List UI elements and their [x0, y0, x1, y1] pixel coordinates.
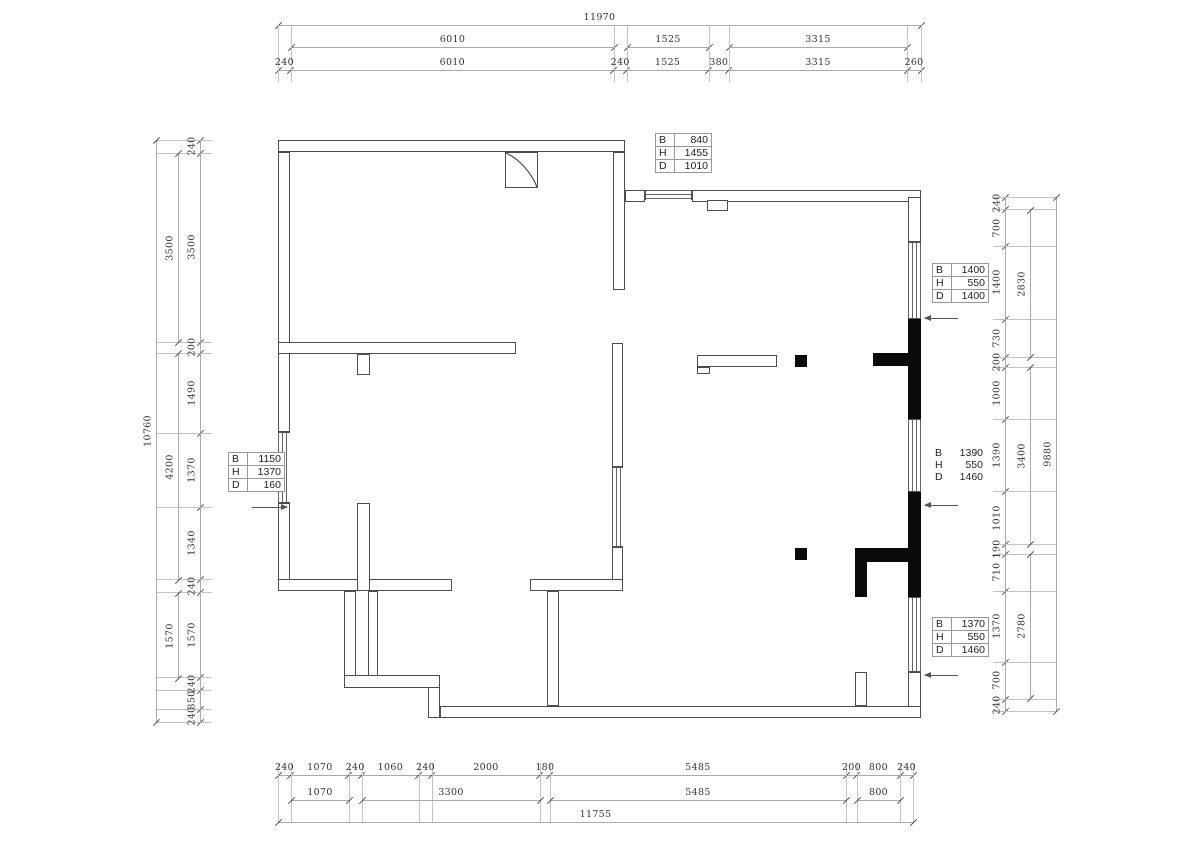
opening-key: H — [229, 466, 248, 479]
opening-key: B — [932, 447, 950, 459]
dim-line-bottom-group-800 — [857, 800, 900, 801]
dim-value: 240 — [897, 762, 916, 773]
floor-plan-canvas: 1197060101525331524060102401525380331526… — [0, 0, 1200, 848]
dim-line-bottom-group-1070 — [291, 800, 349, 801]
dim-ext-line — [907, 25, 908, 82]
opening-key: B — [933, 264, 952, 277]
opening-value: 840 — [675, 134, 712, 147]
dim-value: 240 — [275, 762, 294, 773]
wall-step-v2 — [428, 687, 440, 718]
opening-value: 1150 — [248, 453, 285, 466]
opening-key: H — [656, 147, 675, 160]
dim-line-left-group-4200 — [178, 353, 179, 580]
opening-value: 1370 — [952, 618, 989, 631]
opening-right-1370: B1370H550D1460 — [932, 617, 989, 657]
dim-value: 1570 — [187, 622, 198, 647]
dim-value: 1070 — [307, 762, 332, 773]
opening-value: 1400 — [952, 290, 989, 303]
dim-line-bottom-group-5485 — [550, 800, 846, 801]
dim-value: 240 — [346, 762, 365, 773]
opening-key: H — [933, 631, 952, 644]
dim-line-bottom-group-3300 — [362, 800, 540, 801]
column-bar-lower — [855, 548, 908, 562]
dim-value: 1400 — [992, 270, 1003, 295]
opening-value: 550 — [952, 631, 989, 644]
dim-value: 240 — [992, 695, 1003, 714]
column-tee-upper — [873, 353, 908, 366]
opening-key: B — [933, 618, 952, 631]
opening-key: D — [932, 471, 950, 483]
dim-value: 710 — [992, 563, 1003, 582]
wall-topleft-room-bottom — [278, 342, 516, 354]
dim-line-bottom-total — [278, 822, 913, 823]
opening-key: D — [933, 290, 952, 303]
window-right-1370 — [908, 597, 921, 672]
opening-right-1400: B1400H550D1400 — [932, 263, 989, 303]
dim-value: 2000 — [473, 762, 498, 773]
column-right-lower — [908, 492, 921, 597]
window-interior — [612, 467, 623, 547]
dim-ext-line — [156, 507, 212, 508]
column-square-lower — [795, 548, 807, 560]
dim-ext-line — [156, 433, 212, 434]
dim-value: 11755 — [580, 809, 612, 820]
dim-value: 380 — [709, 57, 728, 68]
wall-bottom — [440, 706, 921, 718]
dim-value: 1340 — [187, 531, 198, 556]
dim-ext-line — [156, 592, 212, 593]
dim-value: 9880 — [1043, 441, 1054, 466]
dim-ext-line — [993, 491, 1056, 492]
dim-line-top-group-1525 — [627, 47, 709, 48]
wall-stub-bottomright — [855, 672, 867, 706]
dim-value: 3500 — [187, 235, 198, 260]
dim-ext-line — [993, 246, 1056, 247]
dim-value: 2830 — [1017, 271, 1028, 296]
dim-ext-line — [291, 25, 292, 82]
dim-line-right-detail — [1005, 197, 1006, 711]
dim-value: 1525 — [655, 34, 680, 45]
opening-value: 1010 — [675, 160, 712, 173]
window-top-840 — [645, 190, 692, 200]
dim-value: 1060 — [378, 762, 403, 773]
wall-topleft-room-right — [613, 152, 625, 290]
dim-value: 1570 — [165, 623, 176, 648]
dim-value: 10760 — [143, 415, 154, 447]
opening-key: D — [229, 479, 248, 492]
wall-interior-h-right — [530, 579, 623, 591]
dim-line-right-group-2830 — [1030, 210, 1031, 357]
dim-value: 240 — [416, 762, 435, 773]
dim-value: 5485 — [685, 787, 710, 798]
wall-step-h — [344, 675, 440, 688]
opening-value: 1460 — [950, 471, 986, 483]
dim-ext-line — [993, 419, 1056, 420]
dim-value: 240 — [611, 57, 630, 68]
dim-line-top-total — [278, 25, 921, 26]
dim-ext-line — [156, 690, 212, 691]
dim-ext-line — [709, 25, 710, 82]
dim-value: 2780 — [1017, 613, 1028, 638]
wall-left-lower — [278, 503, 290, 591]
dim-line-left-group-1570 — [178, 593, 179, 678]
dim-value: 700 — [992, 671, 1003, 690]
dim-ext-line — [156, 677, 212, 678]
leader-right-1370-arrowhead-icon — [924, 672, 931, 678]
dim-value: 180 — [535, 762, 554, 773]
dim-ext-line — [614, 25, 615, 82]
dim-line-right-total — [1056, 197, 1057, 711]
opening-key: H — [933, 277, 952, 290]
dim-ext-line — [156, 140, 212, 141]
dim-ext-line — [156, 153, 212, 154]
wall-left-upper — [278, 152, 290, 432]
dim-value: 11970 — [584, 12, 616, 23]
column-square-upper — [795, 355, 807, 367]
wall-inner-step-v — [368, 591, 378, 677]
dim-line-right-group-3400 — [1030, 367, 1031, 544]
column-right-upper — [908, 319, 921, 419]
dim-value: 3315 — [805, 34, 830, 45]
column-stub-lower — [855, 562, 867, 597]
dim-line-right-group-2780 — [1030, 554, 1031, 698]
dim-value: 6010 — [440, 57, 465, 68]
dim-ext-line — [993, 662, 1056, 663]
opening-value: 1460 — [952, 644, 989, 657]
dim-value: 240 — [992, 194, 1003, 213]
wall-step-v1 — [344, 591, 356, 687]
dim-value: 700 — [992, 218, 1003, 237]
leader-left-1150-arrowhead-icon — [281, 504, 288, 510]
dim-value: 4200 — [165, 454, 176, 479]
dim-value: 240 — [275, 57, 294, 68]
dim-value: 3500 — [165, 235, 176, 260]
dim-line-top-detail — [278, 70, 921, 71]
dim-ext-line — [278, 25, 279, 82]
opening-value: 1370 — [248, 466, 285, 479]
opening-key: D — [933, 644, 952, 657]
dim-value: 1525 — [655, 57, 680, 68]
dim-value: 1070 — [307, 787, 332, 798]
dim-value: 200 — [187, 338, 198, 357]
flue-diagonal-icon — [505, 152, 538, 188]
opening-key: H — [932, 459, 950, 471]
wall-stub-below — [357, 354, 370, 375]
dim-value: 240 — [187, 706, 198, 725]
dim-value: 3300 — [438, 787, 463, 798]
dim-ext-line — [156, 353, 212, 354]
dim-value: 1000 — [992, 380, 1003, 405]
dim-line-top-group-6010 — [291, 47, 614, 48]
window-right-1390 — [908, 419, 921, 492]
dim-line-left-total — [156, 140, 157, 722]
wall-top-connector — [625, 190, 645, 202]
dim-ext-line — [993, 319, 1056, 320]
opening-top: B840H1455D1010 — [655, 133, 712, 173]
dim-value: 800 — [869, 787, 888, 798]
wall-interior-window-bot — [612, 547, 623, 580]
opening-key: B — [656, 134, 675, 147]
opening-value: 1390 — [950, 447, 986, 459]
dim-value: 5485 — [685, 762, 710, 773]
shelf-foot — [697, 367, 710, 374]
dim-value: 3315 — [805, 57, 830, 68]
dim-value: 6010 — [440, 34, 465, 45]
dim-ext-line — [156, 579, 212, 580]
opening-value: 1455 — [675, 147, 712, 160]
opening-right-1390: B1390H550D1460 — [932, 447, 986, 483]
dim-value: 800 — [869, 762, 888, 773]
shelf-outline — [697, 355, 777, 367]
dim-value: 260 — [904, 57, 923, 68]
opening-value: 160 — [248, 479, 285, 492]
dim-value: 1490 — [187, 380, 198, 405]
dim-ext-line — [627, 25, 628, 82]
dim-line-top-group-3315 — [729, 47, 907, 48]
wall-topleft-room-top — [278, 140, 625, 152]
dim-ext-line — [921, 25, 922, 82]
wall-cross-vertical — [357, 503, 370, 591]
dim-value: 190 — [992, 539, 1003, 558]
wall-bottomrooms-divider — [547, 591, 559, 706]
dim-value: 240 — [187, 137, 198, 156]
dim-value: 730 — [992, 328, 1003, 347]
dim-ext-line — [729, 25, 730, 82]
dim-value: 200 — [842, 762, 861, 773]
dim-value: 1390 — [992, 443, 1003, 468]
dim-ext-line — [156, 709, 212, 710]
opening-left-1150: B1150H1370D160 — [228, 452, 285, 492]
dim-line-bottom-detail — [278, 775, 913, 776]
leader-right-1400-arrowhead-icon — [924, 315, 931, 321]
wall-interior-window-top — [612, 343, 623, 467]
wall-right-top — [908, 197, 921, 242]
opening-key: D — [656, 160, 675, 173]
leader-right-1390-arrowhead-icon — [924, 502, 931, 508]
opening-key: B — [229, 453, 248, 466]
opening-value: 550 — [950, 459, 986, 471]
dim-ext-line — [156, 342, 212, 343]
dim-ext-line — [993, 591, 1056, 592]
window-right-1400 — [908, 242, 921, 319]
opening-value: 550 — [952, 277, 989, 290]
dim-value: 1370 — [992, 614, 1003, 639]
dim-value: 1370 — [187, 457, 198, 482]
opening-value: 1400 — [952, 264, 989, 277]
wall-top-notch — [707, 200, 728, 211]
dim-line-left-group-3500 — [178, 153, 179, 342]
dim-value: 240 — [187, 576, 198, 595]
dim-value: 1010 — [992, 505, 1003, 530]
dim-value: 200 — [992, 352, 1003, 371]
dim-ext-line — [156, 722, 212, 723]
dim-value: 3400 — [1017, 443, 1028, 468]
